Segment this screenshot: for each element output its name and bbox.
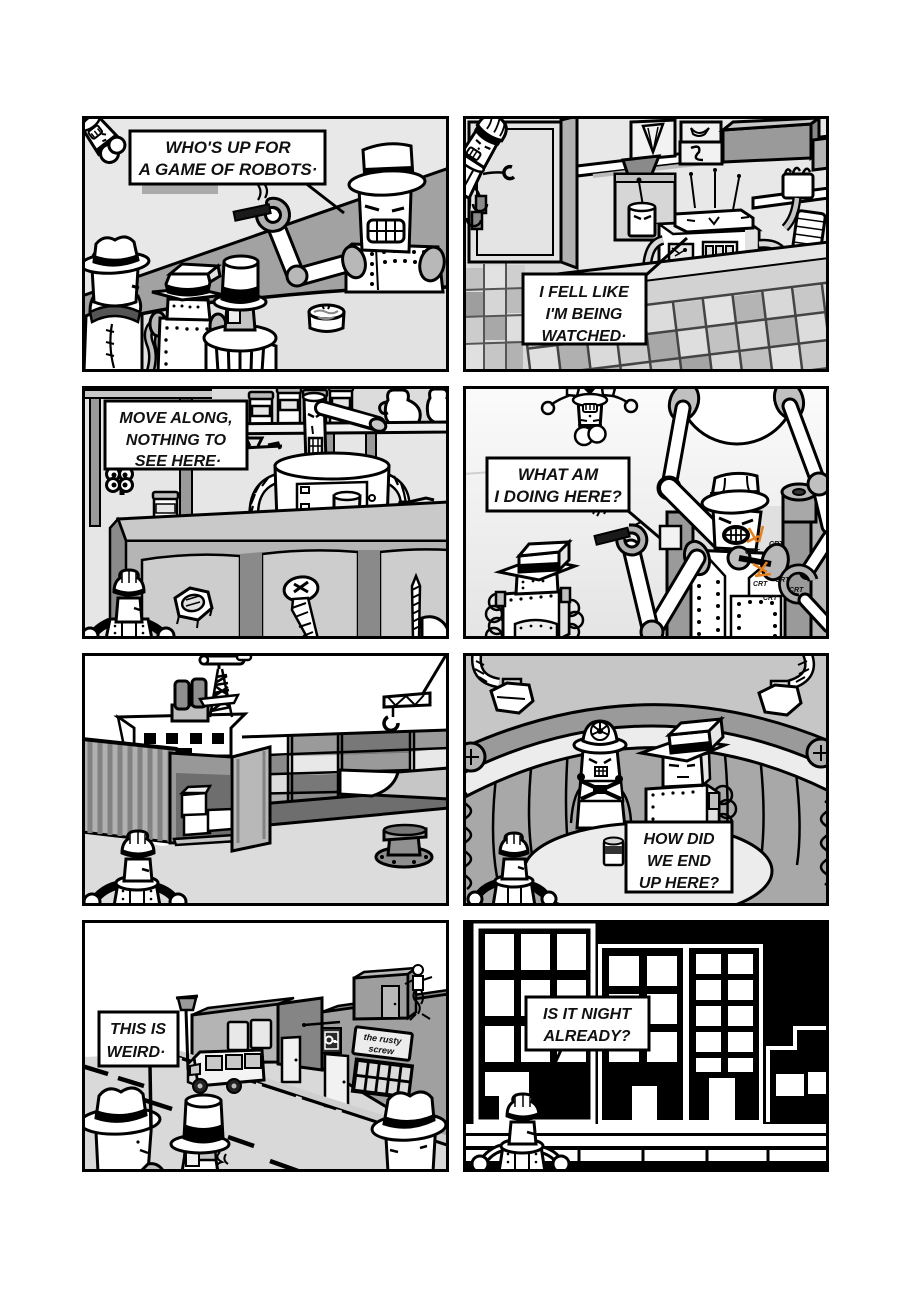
svg-text:WHO'S UP FOR: WHO'S UP FOR — [165, 138, 291, 157]
svg-text:CRT: CRT — [769, 541, 784, 548]
svg-text:A GAME OF ROBOTS·: A GAME OF ROBOTS· — [138, 160, 318, 179]
svg-text:ALREADY?: ALREADY? — [542, 1028, 630, 1045]
svg-text:MOVE ALONG,: MOVE ALONG, — [119, 410, 232, 427]
svg-text:CRT: CRT — [753, 581, 768, 588]
svg-text:NOTHING TO: NOTHING TO — [126, 432, 227, 449]
svg-text:WATCHED·: WATCHED· — [541, 328, 626, 345]
svg-text:IS IT NIGHT: IS IT NIGHT — [543, 1006, 632, 1023]
svg-text:SEE HERE·: SEE HERE· — [135, 453, 221, 470]
svg-text:HOW DID: HOW DID — [643, 831, 715, 848]
svg-text:I DOING HERE?: I DOING HERE? — [494, 487, 622, 506]
svg-text:I'M BEING: I'M BEING — [546, 306, 623, 323]
svg-text:CRT: CRT — [789, 587, 804, 594]
svg-text:THIS IS: THIS IS — [110, 1021, 166, 1038]
svg-text:WEIRD·: WEIRD· — [107, 1044, 166, 1061]
svg-text:WE END: WE END — [647, 853, 711, 870]
svg-text:WHAT AM: WHAT AM — [518, 465, 599, 484]
svg-text:CRT: CRT — [745, 549, 760, 556]
svg-text:UP HERE?: UP HERE? — [639, 875, 720, 892]
svg-text:I FELL LIKE: I FELL LIKE — [539, 284, 630, 301]
svg-text:CRT: CRT — [775, 577, 790, 584]
svg-text:CRT: CRT — [763, 595, 778, 602]
